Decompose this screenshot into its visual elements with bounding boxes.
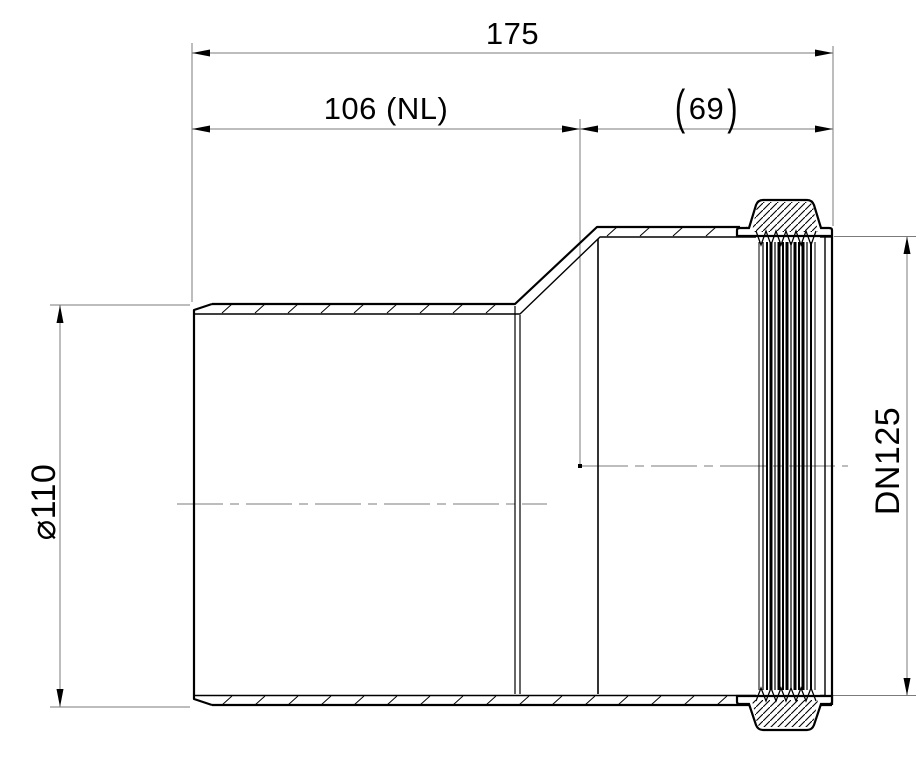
dim-69-label: (69)	[580, 95, 833, 123]
seal-corrugation-lines	[759, 242, 815, 690]
dim-dn125-label: DN125	[873, 407, 903, 515]
dim-69-value: 69	[689, 91, 724, 126]
aux-paren-open: (	[675, 87, 686, 130]
technical-drawing-page: { "drawing": { "labels": { "overall_leng…	[0, 0, 923, 769]
centerlines	[177, 466, 848, 504]
seal-retainer-bottom	[737, 696, 832, 730]
dim-175-label: 175	[192, 20, 833, 48]
aux-paren-close: )	[727, 87, 738, 130]
seal-hatch-top	[752, 202, 818, 232]
dim-dia110-label: ⌀110	[29, 464, 59, 541]
dim-106-nl-label: 106 (NL)	[192, 95, 580, 123]
drawing-canvas: 175 106 (NL) (69) ⌀110 DN125	[0, 0, 923, 769]
extension-end-dot	[578, 464, 582, 468]
seal-hatch-bottom	[752, 700, 818, 727]
seal-retainer-top	[737, 200, 832, 236]
